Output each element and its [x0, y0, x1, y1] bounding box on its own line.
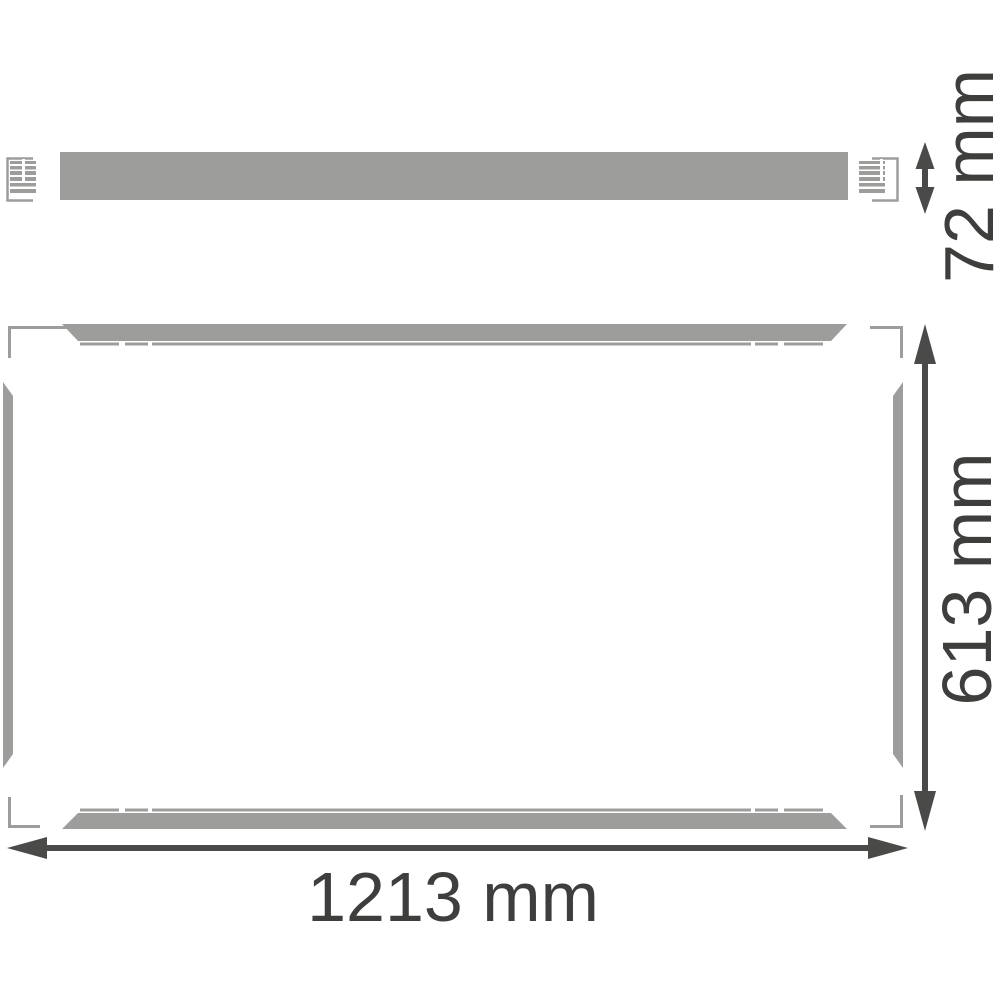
frame-rail-right [893, 382, 903, 768]
end-clip-left-notch [22, 159, 25, 181]
dimension-label-front-height: 613 mm [932, 453, 1000, 706]
frame-rail-bottom-flange [80, 809, 823, 812]
corner-bracket-bottom-left [10, 797, 41, 827]
front-view [3, 324, 936, 859]
corner-bracket-bottom-right [870, 795, 902, 827]
drawing-graphics [0, 0, 1000, 1000]
end-clip-left-icon [8, 159, 37, 201]
dimension-label-front-width: 1213 mm [307, 862, 599, 932]
side-profile-bar [60, 152, 848, 200]
side-view [8, 142, 935, 214]
dimension-label-side-height: 72 mm [934, 69, 1000, 283]
end-clip-right-icon [859, 159, 898, 201]
width-1213-arrow-icon [7, 837, 908, 859]
frame-rail-bottom [62, 813, 847, 829]
frame-rail-left [3, 382, 13, 768]
corner-bracket-top-right [870, 328, 902, 359]
frame-rail-top-flange [80, 343, 823, 346]
product-dimension-drawing: 72 mm 613 mm 1213 mm [0, 0, 1000, 1000]
end-clip-right-notch [880, 159, 883, 181]
frame-rail-top [62, 324, 847, 341]
